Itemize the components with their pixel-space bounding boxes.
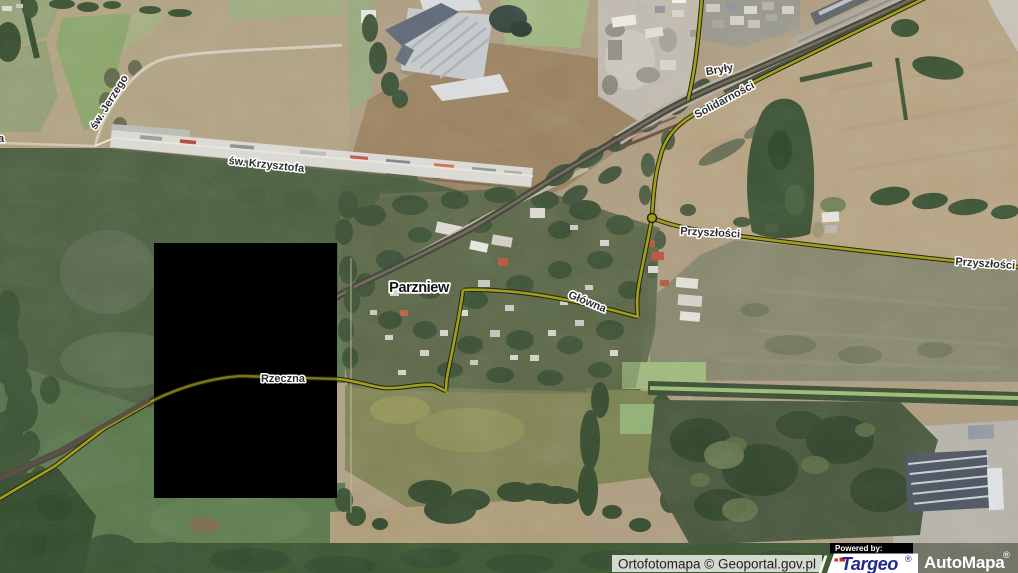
svg-text:Powered by:: Powered by:: [835, 544, 883, 553]
svg-text:Ortofotomapa © Geoportal.gov.p: Ortofotomapa © Geoportal.gov.pl: [618, 557, 816, 572]
svg-text:AutoMapa: AutoMapa: [924, 553, 1005, 572]
svg-text:Parzniew: Parzniew: [389, 280, 450, 296]
svg-text:Rzeczna: Rzeczna: [261, 373, 306, 385]
svg-text:®: ®: [1003, 550, 1010, 561]
svg-text:®: ®: [905, 554, 912, 564]
svg-text:Targeo: Targeo: [841, 554, 898, 573]
